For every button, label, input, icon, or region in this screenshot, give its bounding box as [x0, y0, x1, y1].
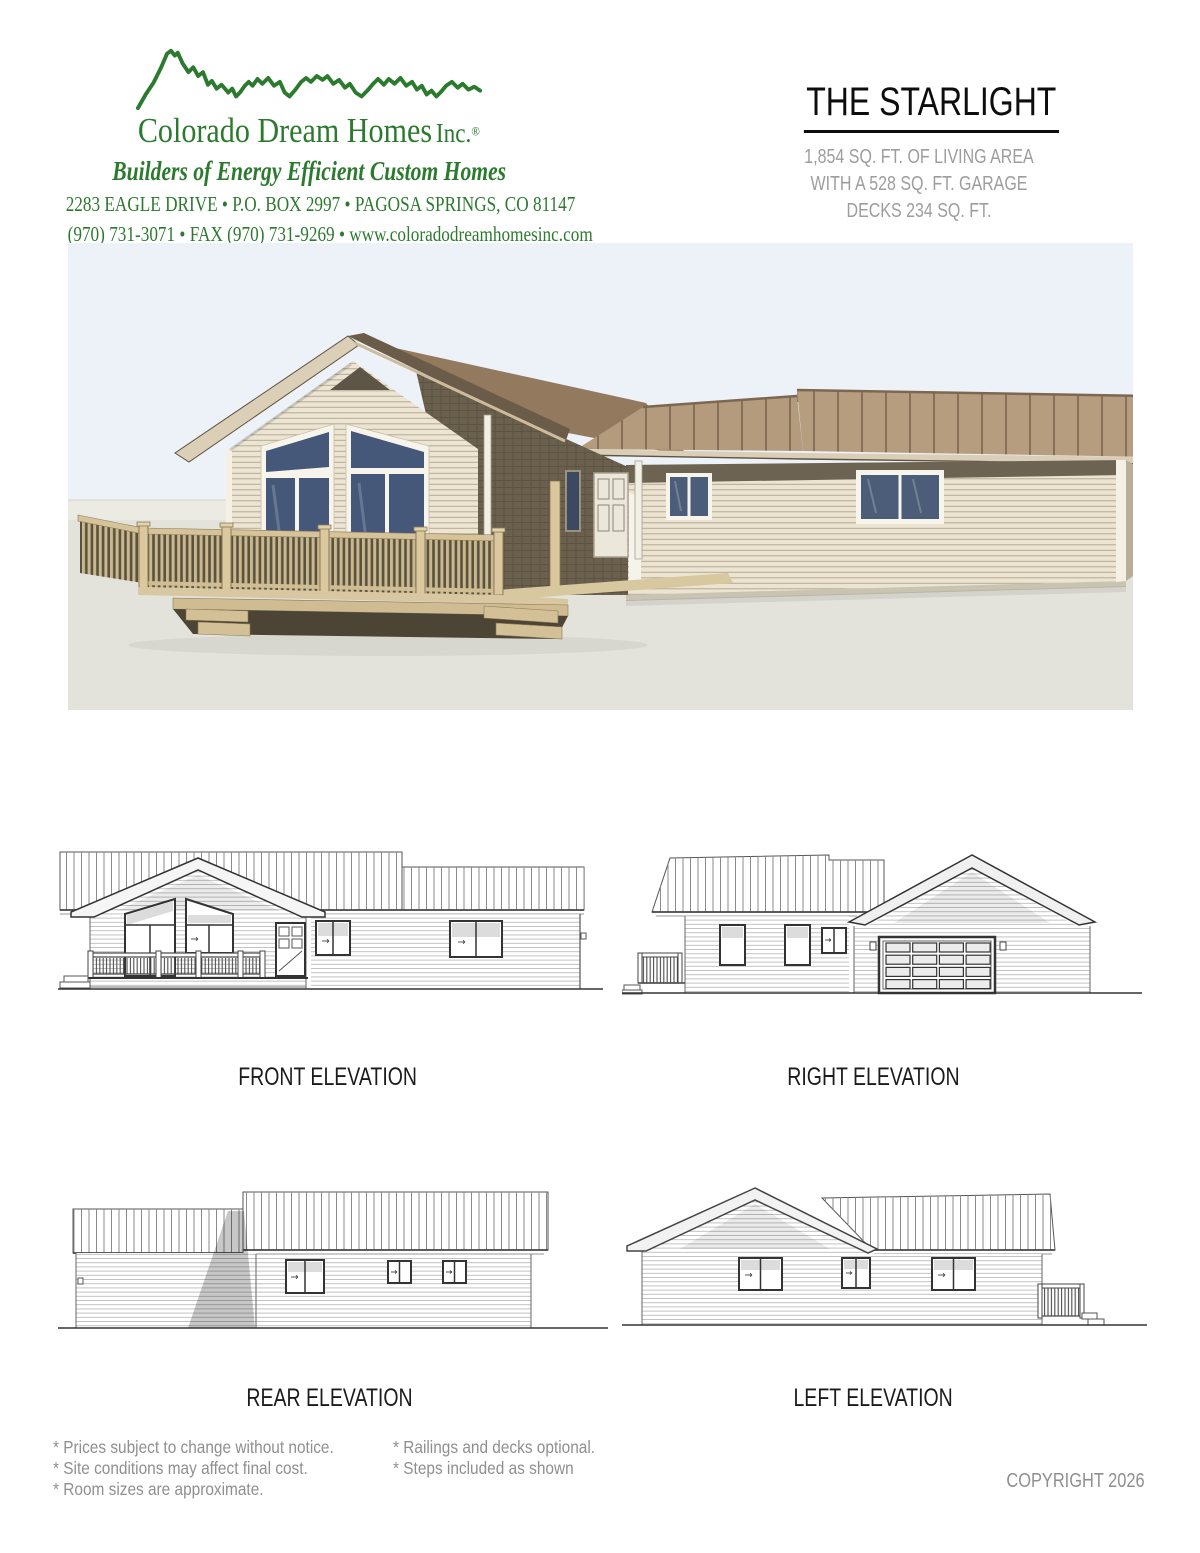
footnote-prices: * Prices subject to change without notic… — [53, 1437, 334, 1458]
mountain-ridge-icon — [130, 42, 488, 112]
company-name: Colorado Dream Homes — [138, 111, 432, 150]
rear-elevation-drawing — [58, 1175, 608, 1340]
plan-specs: 1,854 SQ. FT. OF LIVING AREA WITH A 528 … — [801, 144, 1036, 225]
front-elevation-drawing — [58, 843, 603, 1013]
right-elevation-drawing — [622, 845, 1142, 1010]
spec-decks: DECKS 234 SQ. FT. — [801, 198, 1036, 225]
spec-living-area: 1,854 SQ. FT. OF LIVING AREA — [801, 144, 1036, 171]
footnotes-column-2: * Railings and decks optional. * Steps i… — [393, 1437, 595, 1479]
label-left-elevation: LEFT ELEVATION — [713, 1384, 1033, 1413]
address-line: 2283 EAGLE DRIVE • P.O. BOX 2997 • PAGOS… — [2, 192, 616, 219]
spec-garage: WITH A 528 SQ. FT. GARAGE — [801, 171, 1036, 198]
registered-mark: ® — [472, 124, 481, 139]
footnote-site: * Site conditions may affect final cost. — [53, 1458, 334, 1479]
footnote-steps: * Steps included as shown — [393, 1458, 595, 1479]
left-elevation-drawing — [622, 1173, 1147, 1345]
label-front-elevation: FRONT ELEVATION — [168, 1063, 488, 1092]
company-tagline: Builders of Energy Efficient Custom Home… — [2, 158, 616, 189]
company-name-line: Colorado Dream Homes Inc.® — [2, 112, 616, 157]
footnote-railings: * Railings and decks optional. — [393, 1437, 595, 1458]
company-suffix: Inc. — [436, 118, 471, 148]
header: Colorado Dream Homes Inc.® Builders of E… — [2, 42, 616, 249]
plan-title: THE STARLIGHT — [804, 80, 1059, 133]
copyright-notice: COPYRIGHT 2026 — [845, 1470, 1145, 1493]
label-rear-elevation: REAR ELEVATION — [170, 1384, 490, 1413]
brochure-page: { "page": { "background": "#ffffff" }, "… — [0, 0, 1200, 1553]
plan-title-block: THE STARLIGHT 1,854 SQ. FT. OF LIVING AR… — [772, 80, 1066, 225]
rendering-3d-image — [68, 243, 1133, 710]
rendering-3d — [68, 243, 1133, 710]
label-right-elevation: RIGHT ELEVATION — [713, 1063, 1033, 1092]
footnote-rooms: * Room sizes are approximate. — [53, 1479, 334, 1500]
footnotes-column-1: * Prices subject to change without notic… — [53, 1437, 334, 1500]
